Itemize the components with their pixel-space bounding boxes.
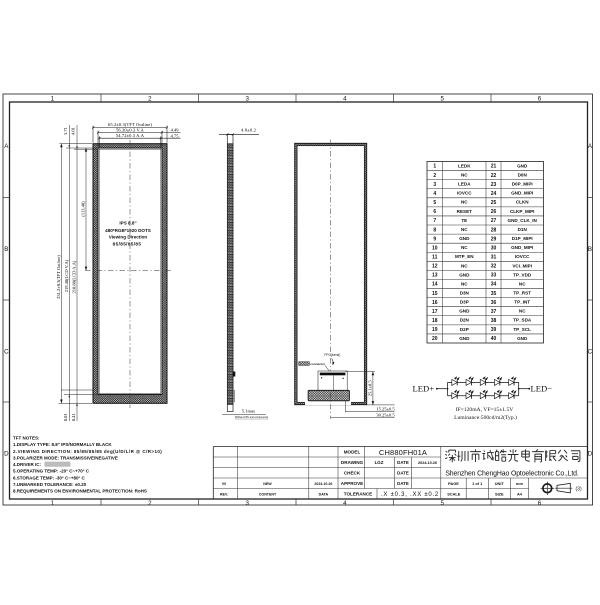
svg-text:24: 24 (491, 191, 497, 197)
svg-text:1: 1 (433, 164, 436, 170)
svg-text:D1P_MIPI: D1P_MIPI (512, 236, 533, 241)
svg-text:30.25±0.5: 30.25±0.5 (376, 413, 395, 418)
svg-text:15.25±0.5: 15.25±0.5 (376, 406, 395, 411)
svg-text:NC: NC (461, 227, 468, 232)
svg-text:NC: NC (519, 281, 526, 286)
svg-text:D3P: D3P (460, 300, 469, 305)
svg-text:29: 29 (491, 236, 497, 242)
svg-text:D: D (588, 451, 593, 458)
svg-text:Shenzhen ChengHao Optoelectron: Shenzhen ChengHao Optoelectronic Co.,Ltd… (445, 470, 579, 477)
svg-text:31: 31 (491, 254, 497, 260)
svg-text:TP_VDD: TP_VDD (513, 272, 532, 277)
svg-text:GND: GND (459, 336, 470, 341)
svg-text:DATE: DATE (397, 471, 409, 476)
svg-text:9: 9 (433, 236, 436, 242)
svg-text:CLKP_MIPI: CLKP_MIPI (510, 209, 535, 214)
svg-text:39: 39 (491, 327, 497, 333)
svg-text:8: 8 (433, 227, 436, 233)
svg-text:2: 2 (148, 96, 152, 103)
svg-text:TOLERANCE: TOLERANCE (344, 492, 373, 497)
svg-text:13: 13 (432, 273, 438, 279)
svg-text:21: 21 (491, 164, 497, 170)
svg-text:GND: GND (459, 309, 470, 314)
svg-text:D0P_MIPI: D0P_MIPI (512, 182, 533, 187)
svg-text:2024.10.26: 2024.10.26 (418, 461, 437, 465)
svg-text:D2P: D2P (460, 327, 469, 332)
svg-text:2024.10.26: 2024.10.26 (314, 482, 332, 486)
svg-text:4.01: 4.01 (71, 127, 76, 135)
svg-text:20: 20 (432, 336, 438, 342)
svg-text:TP_SDA: TP_SDA (513, 318, 532, 323)
svg-text:8.REQUIREMENTS ON ENVIRONMENTA: 8.REQUIREMENTS ON ENVIRONMENTAL PROTECTI… (13, 489, 147, 494)
svg-text:1: 1 (51, 500, 55, 507)
svg-text:NC: NC (519, 309, 526, 314)
svg-text:23: 23 (491, 182, 497, 188)
svg-text:35: 35 (491, 291, 497, 297)
svg-text:C: C (588, 349, 593, 356)
svg-text:1.DISPLAY TYPE: 8.8" IPS/NORM: 1.DISPLAY TYPE: 8.8" IPS/NORMALLY BLACK (13, 442, 112, 447)
svg-text:LGZ: LGZ (375, 460, 384, 465)
svg-text:MODEL: MODEL (344, 450, 361, 455)
svg-text:25: 25 (491, 200, 497, 206)
svg-text:34: 34 (491, 282, 497, 288)
svg-text:GND_MIPI: GND_MIPI (511, 245, 533, 250)
svg-text:2: 2 (433, 173, 436, 179)
svg-text:28: 28 (491, 227, 497, 233)
svg-text:CHECK: CHECK (344, 471, 361, 476)
svg-text:SIZE: SIZE (495, 491, 504, 496)
svg-text:4: 4 (433, 191, 436, 197)
svg-text:TFT NOTES:: TFT NOTES: (13, 436, 40, 441)
svg-text:5: 5 (440, 96, 444, 103)
svg-text:D2N: D2N (460, 318, 470, 323)
svg-text:480*RGB*1920 DOTS: 480*RGB*1920 DOTS (105, 228, 151, 233)
svg-text:54.72±0.3 A.A: 54.72±0.3 A.A (116, 133, 145, 138)
svg-text:TE: TE (461, 218, 467, 223)
svg-text:B: B (588, 246, 592, 253)
svg-text:Luminance:500cd/m2(Typ.): Luminance:500cd/m2(Typ.) (454, 414, 517, 421)
svg-text:A4: A4 (517, 491, 523, 496)
svg-text:56.30±0.3 V.A: 56.30±0.3 V.A (116, 127, 144, 132)
svg-text:LEDA: LEDA (458, 182, 471, 187)
svg-text:36: 36 (491, 300, 497, 306)
svg-text:4.8±0.2: 4.8±0.2 (241, 128, 256, 133)
svg-text:CLKN: CLKN (516, 200, 529, 205)
svg-text:18: 18 (432, 318, 438, 324)
svg-text:25.1±0.5: 25.1±0.5 (367, 380, 372, 397)
svg-text:22: 22 (491, 173, 497, 179)
svg-text:NC: NC (461, 200, 468, 205)
svg-text:C: C (4, 349, 9, 356)
svg-text:B: B (4, 246, 8, 253)
svg-text:218.88(LCD A.A): 218.88(LCD A.A) (72, 260, 77, 293)
svg-text:15: 15 (432, 291, 438, 297)
svg-text:8.41: 8.41 (71, 413, 76, 421)
svg-text:14: 14 (432, 282, 438, 288)
svg-text:11: 11 (432, 254, 438, 260)
svg-text:GND: GND (459, 272, 470, 277)
svg-text:219.48(LCD V.A): 219.48(LCD V.A) (64, 259, 69, 292)
svg-text:VCI_MIPI: VCI_MIPI (512, 263, 532, 268)
svg-text:GND: GND (517, 163, 528, 168)
svg-text:26: 26 (491, 209, 497, 215)
svg-text:4.49: 4.49 (171, 128, 180, 133)
svg-text:3: 3 (433, 182, 436, 188)
svg-text:LEDK: LEDK (458, 163, 471, 168)
svg-text:7: 7 (433, 218, 436, 224)
svg-text:GND_CLK_IN: GND_CLK_IN (508, 218, 538, 223)
svg-text:MTP_EN: MTP_EN (455, 254, 474, 259)
svg-text:D: D (4, 451, 9, 458)
svg-text:.X ±0.3, .XX ±0.2: .X ±0.3, .XX ±0.2 (381, 492, 439, 498)
svg-text:TP_RST: TP_RST (513, 290, 531, 295)
svg-text:PAGE: PAGE (448, 481, 459, 486)
svg-text:NEW: NEW (263, 482, 272, 486)
svg-text:7.UNMARKED TOLERANCE: ±0.20: 7.UNMARKED TOLERANCE: ±0.20 (13, 482, 87, 487)
svg-text:3.71: 3.71 (63, 127, 68, 135)
svg-text:2: 2 (148, 500, 152, 507)
svg-text:30: 30 (491, 245, 497, 251)
svg-text:CONTENT: CONTENT (259, 493, 277, 497)
svg-text:V0: V0 (222, 482, 226, 486)
svg-text:GND: GND (517, 336, 528, 341)
svg-text:D0N: D0N (518, 173, 528, 178)
svg-text:8.01: 8.01 (63, 413, 68, 421)
svg-text:4: 4 (343, 96, 347, 103)
svg-text:4: 4 (343, 500, 347, 507)
svg-text:TP_SCL: TP_SCL (513, 327, 531, 332)
svg-text:4.DRIVER IC:: 4.DRIVER IC: (13, 462, 42, 467)
svg-text:connector: connector (310, 362, 326, 366)
svg-text:10: 10 (432, 245, 438, 251)
svg-text:NC: NC (461, 281, 468, 286)
svg-text:32: 32 (491, 264, 497, 270)
svg-text:(113.48): (113.48) (80, 201, 85, 217)
svg-text:DRAWING: DRAWING (341, 460, 364, 465)
svg-text:19: 19 (432, 327, 438, 333)
svg-text:37: 37 (491, 309, 497, 315)
svg-text:231.2±0.3(TFT Outline): 231.2±0.3(TFT Outline) (56, 255, 61, 299)
svg-text:33: 33 (491, 273, 497, 279)
svg-text:5: 5 (433, 200, 436, 206)
svg-text:(Without FPC and components): (Without FPC and components) (235, 416, 269, 419)
svg-text:DATA: DATA (319, 493, 329, 497)
svg-text:D1N: D1N (518, 227, 528, 232)
svg-text:16: 16 (432, 300, 438, 306)
svg-text:TP_INT: TP_INT (514, 300, 530, 305)
svg-text:mm: mm (516, 481, 523, 486)
svg-text:GND_MIPI: GND_MIPI (511, 191, 533, 196)
svg-text:17: 17 (432, 309, 438, 315)
svg-text:1: 1 (51, 96, 55, 103)
svg-text:5.OPERATING TEMP: -20° C~+70°: 5.OPERATING TEMP: -20° C~+70° C (13, 469, 90, 474)
svg-text:6: 6 (538, 96, 542, 103)
svg-text:CH880FH01A: CH880FH01A (379, 448, 427, 457)
svg-text:Viewing Direction: Viewing Direction (109, 235, 148, 240)
svg-text:(3): (3) (576, 487, 582, 493)
svg-text:3: 3 (245, 500, 249, 507)
svg-text:DATE: DATE (397, 481, 409, 486)
svg-text:5: 5 (440, 500, 444, 507)
svg-text:GND: GND (459, 236, 470, 241)
svg-text:2.VIEWING DIRECTION: 85/85/85/: 2.VIEWING DIRECTION: 85/85/85/85 deg(U/D… (13, 449, 162, 454)
svg-text:NC: NC (461, 263, 468, 268)
svg-text:4.75: 4.75 (171, 133, 180, 138)
svg-text:3: 3 (245, 96, 249, 103)
svg-text:FPC(bend): FPC(bend) (324, 353, 340, 357)
svg-text:12: 12 (432, 264, 438, 270)
svg-text:6: 6 (538, 500, 542, 507)
svg-text:SCALE: SCALE (447, 491, 461, 496)
svg-text:IF=120mA, VF=15±1.5V: IF=120mA, VF=15±1.5V (456, 407, 514, 413)
svg-text:6: 6 (433, 209, 436, 215)
svg-text:1 of 1: 1 of 1 (472, 481, 483, 486)
svg-text:UNIT: UNIT (495, 481, 505, 486)
svg-text:27: 27 (491, 218, 497, 224)
svg-text:APPROVE: APPROVE (341, 481, 363, 486)
svg-text:RESET: RESET (457, 209, 473, 214)
svg-text:40: 40 (491, 336, 497, 342)
svg-text:3.POLARIZER MODE: TRANSMISSIVE: 3.POLARIZER MODE: TRANSMISSIVE/NEGATIVE (13, 455, 118, 460)
svg-text:IPS 8.8": IPS 8.8" (119, 220, 136, 225)
svg-text:IOVCC: IOVCC (515, 254, 530, 259)
svg-text:85/85/85/85: 85/85/85/85 (113, 242, 142, 247)
svg-text:5.1max: 5.1max (242, 408, 256, 413)
svg-text:NC: NC (461, 245, 468, 250)
svg-text:NC: NC (461, 173, 468, 178)
svg-text:LED−: LED− (531, 384, 553, 394)
svg-text:REV.: REV. (220, 493, 228, 497)
svg-text:38: 38 (491, 318, 497, 324)
svg-text:DATE: DATE (397, 460, 409, 465)
svg-text:IOVCC: IOVCC (457, 191, 472, 196)
svg-text:6.STORAGE TEMP: -30° C~+80° C: 6.STORAGE TEMP: -30° C~+80° C (13, 475, 86, 480)
svg-text:LED+: LED+ (413, 384, 435, 394)
svg-text:D3N: D3N (460, 290, 470, 295)
